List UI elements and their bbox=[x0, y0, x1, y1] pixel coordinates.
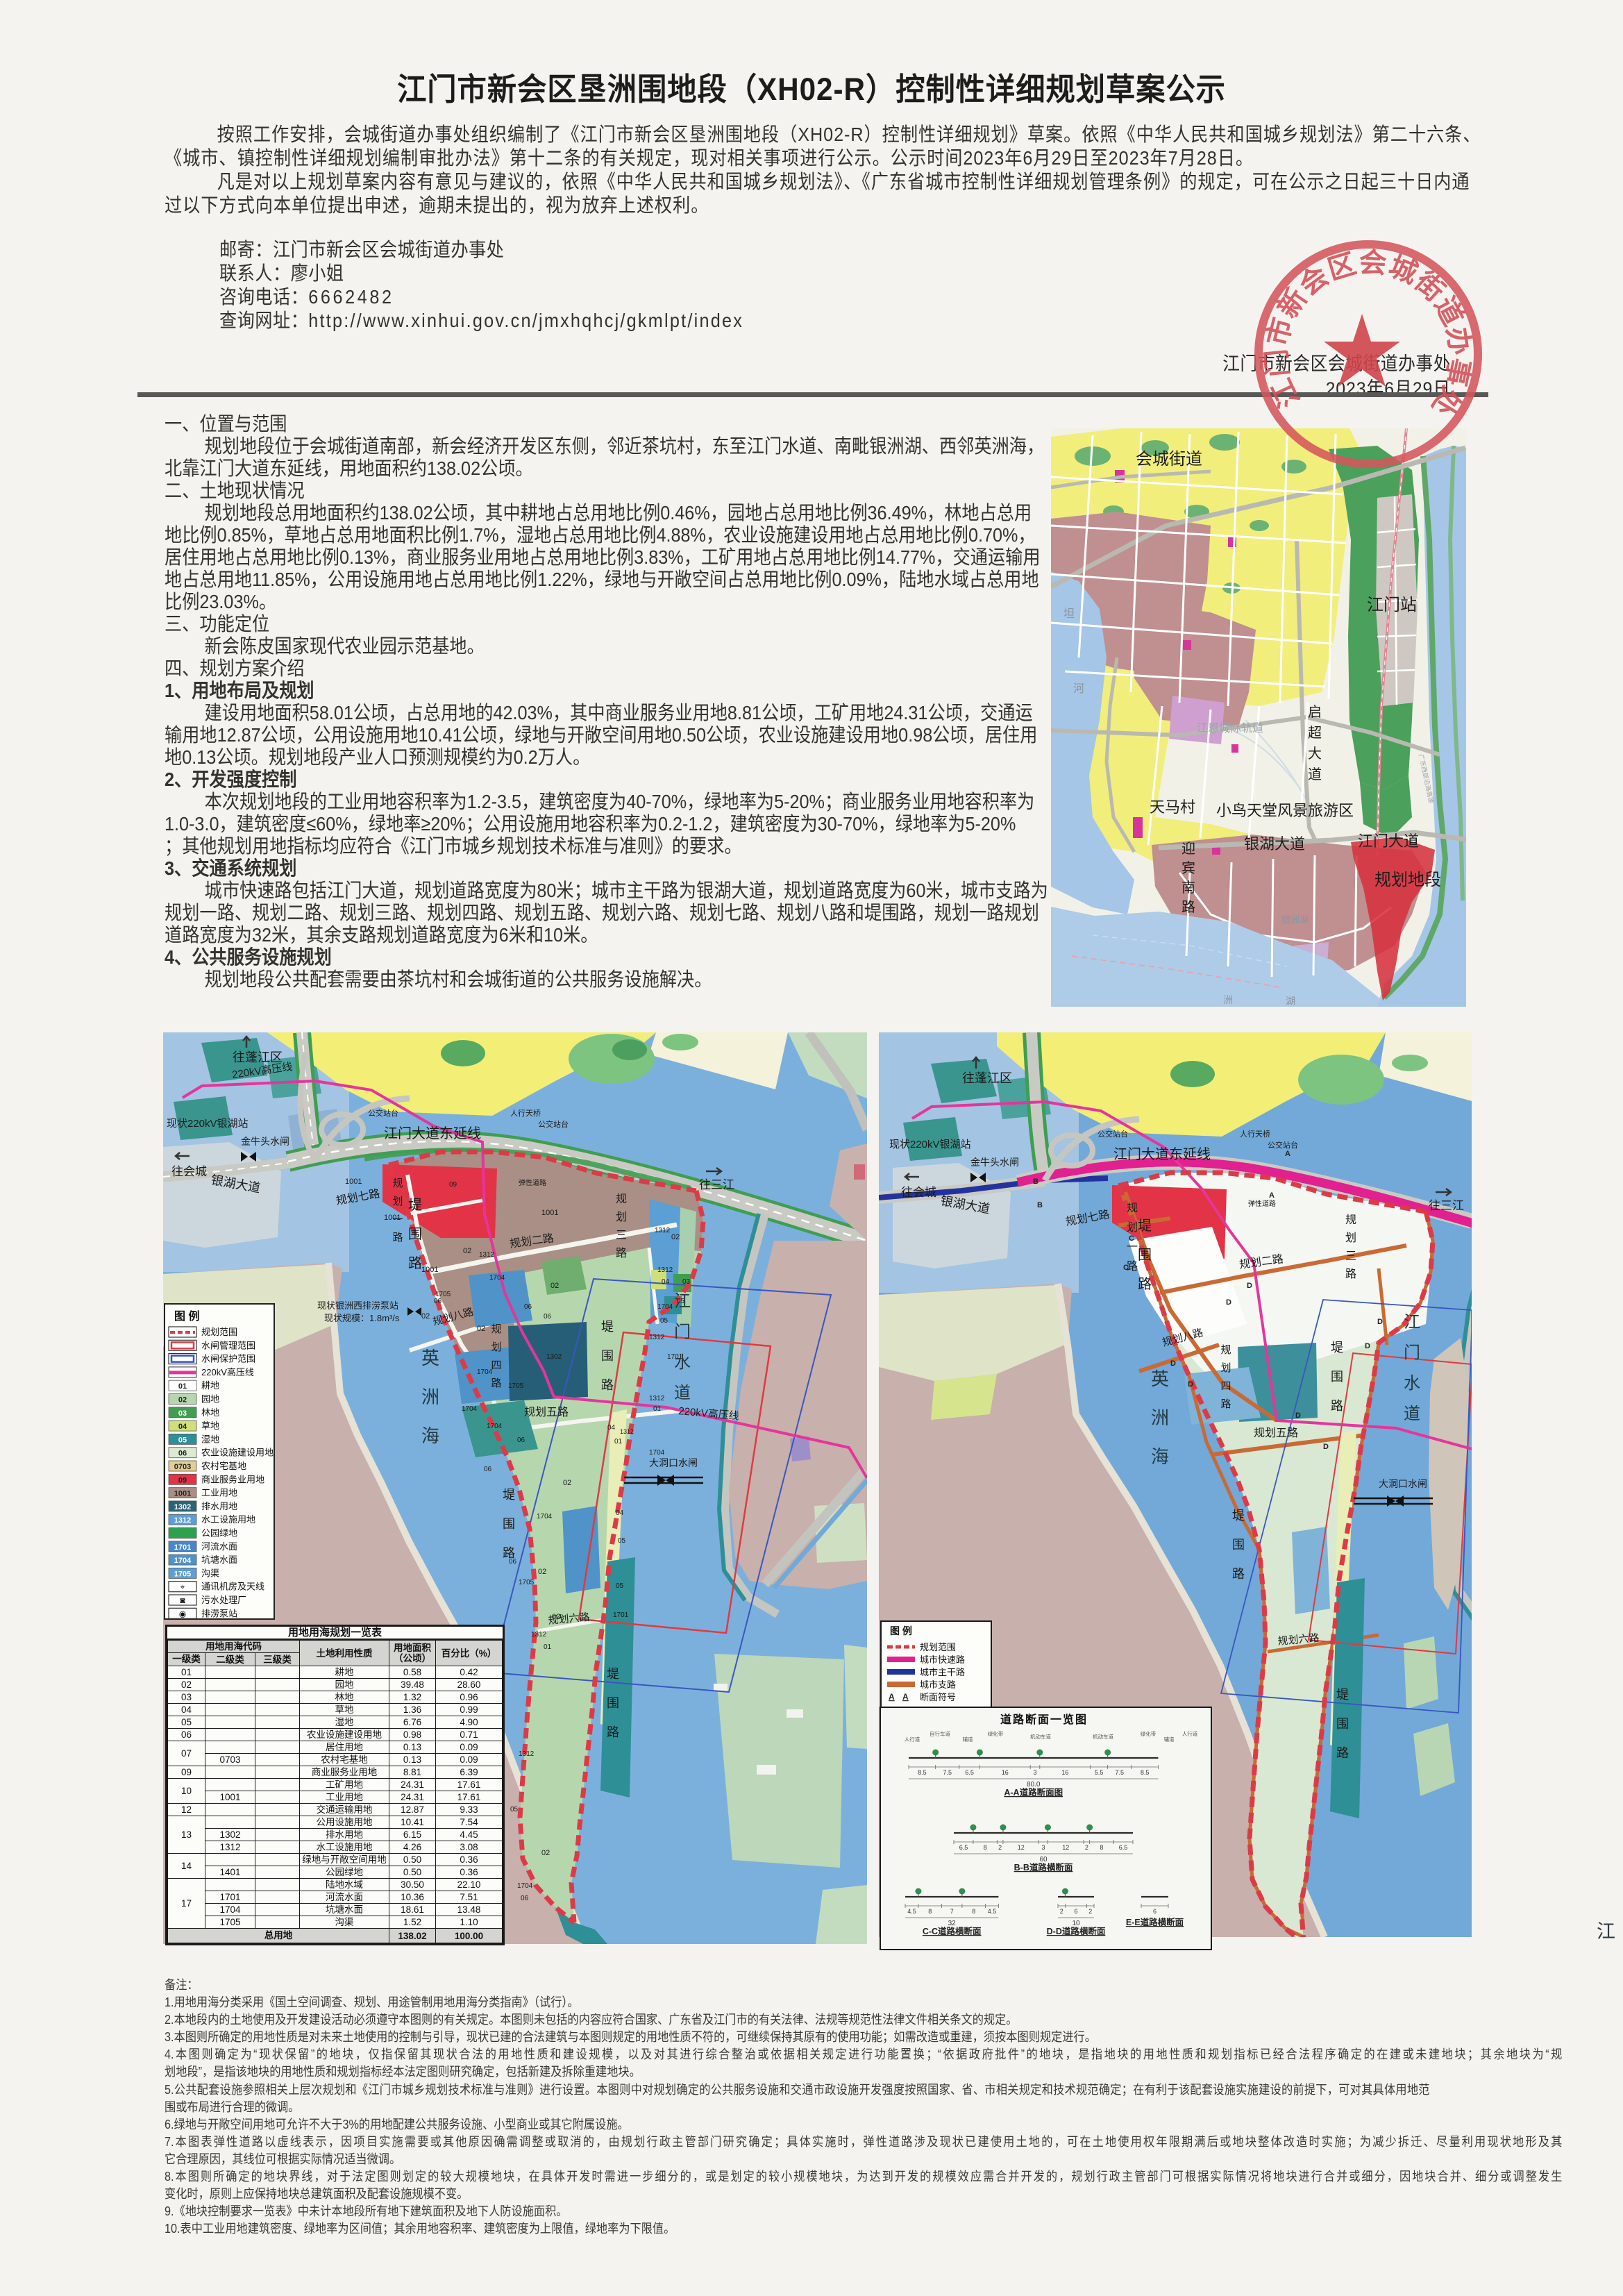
svg-text:围: 围 bbox=[1331, 1370, 1343, 1384]
svg-text:通讯机房及天线: 通讯机房及天线 bbox=[201, 1582, 264, 1592]
svg-text:现状220kV银湖站: 现状220kV银湖站 bbox=[167, 1118, 249, 1130]
svg-text:坦: 坦 bbox=[1063, 607, 1075, 620]
svg-text:天马村: 天马村 bbox=[1150, 798, 1195, 816]
svg-text:绿化带: 绿化带 bbox=[988, 1730, 1004, 1737]
svg-text:路: 路 bbox=[1181, 899, 1195, 915]
svg-text:1705: 1705 bbox=[508, 1382, 524, 1390]
svg-text:江恩城际轨道: 江恩城际轨道 bbox=[1197, 722, 1263, 735]
svg-text:规划地段: 规划地段 bbox=[1374, 871, 1441, 889]
svg-text:银洲湖: 银洲湖 bbox=[1281, 914, 1309, 925]
svg-text:自行车道: 自行车道 bbox=[930, 1730, 950, 1737]
svg-text:英: 英 bbox=[421, 1348, 439, 1368]
svg-text:06: 06 bbox=[544, 1313, 552, 1321]
svg-text:2: 2 bbox=[1060, 1908, 1063, 1915]
svg-text:河: 河 bbox=[1073, 682, 1084, 695]
svg-text:路: 路 bbox=[1232, 1567, 1245, 1581]
svg-text:02: 02 bbox=[463, 1247, 471, 1255]
svg-text:01: 01 bbox=[544, 1643, 552, 1651]
svg-text:03: 03 bbox=[178, 1409, 187, 1418]
svg-text:道路断面一览图: 道路断面一览图 bbox=[1000, 1713, 1088, 1726]
svg-text:划: 划 bbox=[1220, 1362, 1231, 1374]
svg-text:江门站: 江门站 bbox=[1367, 596, 1417, 614]
svg-text:1312: 1312 bbox=[649, 1334, 665, 1341]
svg-text:05: 05 bbox=[616, 1582, 624, 1590]
svg-text:排水用地: 排水用地 bbox=[201, 1501, 237, 1511]
svg-text:04: 04 bbox=[178, 1423, 187, 1431]
svg-text:机动车道: 机动车道 bbox=[1030, 1733, 1051, 1740]
svg-text:4.5: 4.5 bbox=[988, 1908, 997, 1915]
svg-text:道: 道 bbox=[674, 1384, 691, 1402]
svg-text:1001: 1001 bbox=[174, 1490, 191, 1498]
svg-text:图 例: 图 例 bbox=[890, 1625, 912, 1636]
svg-text:水工设施用地: 水工设施用地 bbox=[201, 1514, 255, 1525]
svg-text:规划五路: 规划五路 bbox=[524, 1406, 569, 1418]
svg-text:05: 05 bbox=[510, 1806, 519, 1813]
svg-text:三: 三 bbox=[616, 1230, 627, 1241]
svg-text:06: 06 bbox=[178, 1450, 187, 1458]
svg-text:1704: 1704 bbox=[174, 1557, 192, 1565]
svg-text:04: 04 bbox=[662, 1278, 670, 1286]
svg-text:1704: 1704 bbox=[489, 1274, 505, 1282]
svg-text:门: 门 bbox=[674, 1323, 691, 1341]
svg-text:7.5: 7.5 bbox=[943, 1769, 952, 1776]
svg-text:往三江: 往三江 bbox=[1429, 1199, 1464, 1212]
svg-text:8.5: 8.5 bbox=[1141, 1769, 1150, 1776]
svg-text:1302: 1302 bbox=[174, 1503, 191, 1511]
svg-text:划: 划 bbox=[491, 1341, 501, 1353]
svg-text:划: 划 bbox=[392, 1196, 403, 1207]
svg-text:金牛头水闸: 金牛头水闸 bbox=[970, 1157, 1019, 1168]
svg-text:D: D bbox=[1188, 1380, 1193, 1389]
svg-text:02: 02 bbox=[541, 1849, 550, 1857]
svg-text:规划范围: 规划范围 bbox=[201, 1327, 237, 1337]
svg-text:1312: 1312 bbox=[620, 1428, 634, 1435]
svg-text:⌖: ⌖ bbox=[180, 1582, 185, 1592]
svg-text:1701: 1701 bbox=[613, 1611, 629, 1619]
svg-text:江门大道东延线: 江门大道东延线 bbox=[1113, 1146, 1211, 1162]
svg-text:往三江: 往三江 bbox=[699, 1178, 734, 1191]
svg-text:06: 06 bbox=[484, 1466, 492, 1473]
svg-text:D: D bbox=[1295, 1411, 1301, 1420]
svg-text:堤: 堤 bbox=[503, 1488, 515, 1502]
svg-text:公交站台: 公交站台 bbox=[538, 1119, 569, 1129]
svg-text:01: 01 bbox=[178, 1382, 187, 1391]
svg-text:1704: 1704 bbox=[649, 1449, 665, 1457]
svg-text:道: 道 bbox=[1308, 766, 1322, 782]
svg-text:路: 路 bbox=[1138, 1276, 1152, 1292]
svg-text:图 例: 图 例 bbox=[174, 1309, 199, 1323]
svg-text:现状220kV银湖站: 现状220kV银湖站 bbox=[889, 1139, 971, 1150]
svg-text:断面符号: 断面符号 bbox=[920, 1692, 956, 1702]
svg-text:02: 02 bbox=[421, 1312, 430, 1321]
svg-text:道: 道 bbox=[1404, 1405, 1420, 1423]
svg-text:D: D bbox=[1247, 1282, 1252, 1290]
svg-text:02: 02 bbox=[477, 1325, 485, 1333]
svg-text:规: 规 bbox=[1345, 1214, 1356, 1226]
svg-text:路: 路 bbox=[601, 1378, 614, 1392]
svg-text:大洞口水闸: 大洞口水闸 bbox=[649, 1457, 698, 1468]
svg-text:路: 路 bbox=[491, 1377, 501, 1389]
svg-text:往会城: 往会城 bbox=[901, 1186, 936, 1199]
svg-text:围: 围 bbox=[1232, 1538, 1245, 1552]
svg-text:洲: 洲 bbox=[1151, 1407, 1169, 1428]
svg-text:06: 06 bbox=[517, 1436, 525, 1444]
svg-text:沟渠: 沟渠 bbox=[201, 1568, 219, 1578]
svg-text:1704: 1704 bbox=[487, 1423, 503, 1430]
svg-text:1312: 1312 bbox=[479, 1251, 495, 1259]
svg-text:1312: 1312 bbox=[531, 1631, 547, 1639]
svg-text:四: 四 bbox=[491, 1359, 501, 1371]
svg-text:1705: 1705 bbox=[519, 1579, 535, 1586]
svg-text:金牛头水闸: 金牛头水闸 bbox=[241, 1136, 289, 1147]
svg-text:8: 8 bbox=[928, 1908, 932, 1915]
svg-text:2: 2 bbox=[1085, 1844, 1088, 1851]
svg-text:1302: 1302 bbox=[546, 1353, 562, 1361]
svg-text:06: 06 bbox=[521, 1895, 529, 1902]
svg-text:湖: 湖 bbox=[1286, 996, 1295, 1007]
svg-text:堤: 堤 bbox=[607, 1667, 619, 1681]
svg-text:规划五路: 规划五路 bbox=[1254, 1427, 1298, 1439]
svg-text:8: 8 bbox=[972, 1908, 975, 1915]
svg-text:路: 路 bbox=[1331, 1399, 1343, 1413]
svg-text:7.5: 7.5 bbox=[1115, 1769, 1124, 1776]
svg-text:大: 大 bbox=[1308, 746, 1322, 762]
svg-text:B-B道路横断面: B-B道路横断面 bbox=[1014, 1862, 1073, 1872]
svg-text:围: 围 bbox=[1336, 1717, 1349, 1731]
svg-text:1001: 1001 bbox=[541, 1209, 558, 1217]
svg-text:水闸管理范围: 水闸管理范围 bbox=[201, 1340, 255, 1350]
svg-text:堤: 堤 bbox=[601, 1320, 614, 1334]
svg-text:公园绿地: 公园绿地 bbox=[201, 1528, 237, 1539]
svg-text:围: 围 bbox=[503, 1517, 515, 1531]
svg-text:园地: 园地 bbox=[201, 1394, 219, 1405]
svg-text:09: 09 bbox=[178, 1476, 187, 1484]
svg-text:湿地: 湿地 bbox=[201, 1434, 219, 1444]
svg-text:01: 01 bbox=[614, 1438, 623, 1446]
svg-text:1001: 1001 bbox=[345, 1178, 362, 1186]
svg-text:3: 3 bbox=[1033, 1769, 1036, 1776]
svg-text:堤: 堤 bbox=[1138, 1218, 1152, 1234]
svg-text:路: 路 bbox=[1345, 1268, 1356, 1280]
svg-text:辅道: 辅道 bbox=[963, 1736, 974, 1743]
svg-text:海: 海 bbox=[1151, 1446, 1169, 1467]
svg-text:0703: 0703 bbox=[174, 1463, 191, 1471]
svg-text:A-A道路断面图: A-A道路断面图 bbox=[1004, 1787, 1063, 1798]
svg-text:草地: 草地 bbox=[201, 1421, 219, 1431]
svg-text:耕地: 耕地 bbox=[201, 1380, 219, 1391]
svg-text:公交站台: 公交站台 bbox=[1268, 1140, 1298, 1150]
svg-text:城市支路: 城市支路 bbox=[920, 1679, 956, 1690]
svg-text:A: A bbox=[902, 1692, 909, 1702]
svg-text:一: 一 bbox=[1127, 1241, 1138, 1253]
svg-text:6: 6 bbox=[1074, 1908, 1077, 1915]
svg-text:规: 规 bbox=[1127, 1202, 1138, 1214]
svg-text:1704: 1704 bbox=[657, 1303, 673, 1311]
svg-text:D: D bbox=[1170, 1359, 1176, 1368]
svg-text:农村宅基地: 农村宅基地 bbox=[201, 1461, 246, 1471]
svg-text:A: A bbox=[1269, 1191, 1275, 1200]
svg-text:排涝泵站: 排涝泵站 bbox=[201, 1608, 237, 1618]
svg-text:规: 规 bbox=[1220, 1344, 1231, 1356]
svg-text:堤: 堤 bbox=[1331, 1341, 1343, 1355]
svg-text:路: 路 bbox=[408, 1255, 422, 1271]
svg-text:12: 12 bbox=[1018, 1844, 1025, 1851]
svg-text:三: 三 bbox=[1345, 1250, 1356, 1262]
svg-text:超: 超 bbox=[1308, 725, 1322, 741]
svg-text:1001: 1001 bbox=[421, 1266, 438, 1274]
svg-text:公交站台: 公交站台 bbox=[368, 1108, 398, 1118]
svg-text:1704: 1704 bbox=[537, 1513, 553, 1520]
svg-text:水: 水 bbox=[674, 1353, 691, 1372]
svg-text:03: 03 bbox=[682, 1278, 691, 1286]
svg-text:会城街道: 会城街道 bbox=[1136, 450, 1202, 469]
svg-text:工业用地: 工业用地 bbox=[201, 1488, 237, 1498]
svg-text:绿化带: 绿化带 bbox=[1141, 1730, 1157, 1737]
svg-text:启: 启 bbox=[1308, 704, 1322, 720]
svg-text:江门大道: 江门大道 bbox=[1358, 832, 1419, 850]
svg-text:6.5: 6.5 bbox=[1119, 1844, 1128, 1851]
svg-text:银湖大道: 银湖大道 bbox=[1244, 835, 1305, 853]
svg-text:江: 江 bbox=[674, 1292, 691, 1311]
svg-text:8.5: 8.5 bbox=[918, 1769, 927, 1776]
svg-text:污水处理厂: 污水处理厂 bbox=[201, 1595, 246, 1605]
svg-text:1312: 1312 bbox=[657, 1266, 673, 1274]
svg-text:城市快速路: 城市快速路 bbox=[920, 1654, 965, 1665]
svg-text:洲: 洲 bbox=[1223, 994, 1233, 1005]
svg-text:06: 06 bbox=[434, 1298, 442, 1305]
svg-text:◙: ◙ bbox=[180, 1595, 185, 1605]
svg-text:D: D bbox=[1377, 1318, 1383, 1326]
svg-text:弹性道路: 弹性道路 bbox=[519, 1178, 546, 1187]
svg-text:往蓬江区: 往蓬江区 bbox=[962, 1071, 1012, 1085]
svg-text:坑塘水面: 坑塘水面 bbox=[201, 1555, 237, 1565]
svg-text:02: 02 bbox=[178, 1396, 187, 1405]
svg-text:1312: 1312 bbox=[174, 1516, 191, 1525]
svg-text:02: 02 bbox=[671, 1233, 680, 1241]
svg-text:围: 围 bbox=[607, 1696, 619, 1710]
svg-text:◉: ◉ bbox=[179, 1609, 186, 1618]
svg-text:1704: 1704 bbox=[462, 1405, 478, 1413]
svg-text:6: 6 bbox=[1153, 1908, 1157, 1915]
svg-text:1312: 1312 bbox=[655, 1227, 671, 1234]
svg-text:围: 围 bbox=[1138, 1248, 1152, 1263]
svg-text:路: 路 bbox=[503, 1546, 515, 1560]
svg-text:宾: 宾 bbox=[1181, 860, 1195, 876]
svg-text:路: 路 bbox=[616, 1247, 627, 1259]
svg-text:围: 围 bbox=[408, 1227, 422, 1242]
svg-text:A: A bbox=[1285, 1150, 1290, 1158]
svg-text:6.5: 6.5 bbox=[965, 1769, 974, 1776]
svg-text:路: 路 bbox=[1220, 1398, 1231, 1410]
svg-text:C: C bbox=[1129, 1234, 1134, 1243]
svg-text:人行道: 人行道 bbox=[1182, 1730, 1198, 1737]
svg-text:弹性道路: 弹性道路 bbox=[1248, 1199, 1276, 1208]
svg-text:洲: 洲 bbox=[421, 1386, 439, 1407]
svg-text:堤: 堤 bbox=[1336, 1688, 1349, 1702]
svg-text:划: 划 bbox=[1127, 1221, 1138, 1234]
svg-text:堤: 堤 bbox=[1232, 1509, 1245, 1523]
svg-text:8: 8 bbox=[984, 1844, 987, 1851]
svg-text:02: 02 bbox=[563, 1479, 571, 1487]
svg-text:1705: 1705 bbox=[174, 1570, 191, 1578]
svg-text:门: 门 bbox=[1404, 1343, 1420, 1362]
svg-text:现状规模：1.8m³/s: 现状规模：1.8m³/s bbox=[324, 1313, 400, 1323]
svg-text:1701: 1701 bbox=[174, 1543, 191, 1552]
svg-text:1312: 1312 bbox=[649, 1395, 665, 1402]
svg-text:02: 02 bbox=[552, 1613, 560, 1621]
svg-text:海: 海 bbox=[421, 1425, 439, 1446]
svg-text:往会城: 往会城 bbox=[171, 1165, 207, 1178]
svg-text:辅道: 辅道 bbox=[1164, 1736, 1175, 1743]
svg-text:C: C bbox=[1123, 1264, 1129, 1272]
svg-text:1704: 1704 bbox=[477, 1368, 493, 1376]
svg-text:南: 南 bbox=[1181, 880, 1195, 896]
svg-text:4.5: 4.5 bbox=[907, 1908, 916, 1915]
svg-text:3: 3 bbox=[1041, 1844, 1045, 1851]
svg-text:江门大道东延线: 江门大道东延线 bbox=[384, 1125, 481, 1141]
svg-text:小鸟天堂风景旅游区: 小鸟天堂风景旅游区 bbox=[1216, 802, 1354, 819]
svg-text:路: 路 bbox=[392, 1232, 403, 1243]
svg-text:2: 2 bbox=[998, 1844, 1002, 1851]
svg-text:路: 路 bbox=[1336, 1746, 1349, 1760]
svg-text:商业服务业用地: 商业服务业用地 bbox=[201, 1474, 264, 1484]
svg-text:路: 路 bbox=[607, 1725, 619, 1739]
svg-text:划: 划 bbox=[616, 1211, 627, 1223]
svg-text:往蓬江区: 往蓬江区 bbox=[233, 1050, 283, 1064]
svg-text:220kV高压线: 220kV高压线 bbox=[201, 1367, 254, 1377]
svg-text:机动车道: 机动车道 bbox=[1093, 1733, 1113, 1740]
svg-text:05: 05 bbox=[178, 1436, 187, 1444]
svg-text:河流水面: 河流水面 bbox=[201, 1541, 237, 1552]
svg-text:B: B bbox=[1033, 1178, 1038, 1186]
svg-text:7: 7 bbox=[950, 1908, 954, 1915]
svg-text:D: D bbox=[1323, 1443, 1329, 1451]
svg-text:规划范围: 规划范围 bbox=[920, 1642, 956, 1652]
svg-text:1704: 1704 bbox=[517, 1882, 533, 1890]
svg-text:05: 05 bbox=[660, 1317, 668, 1325]
svg-text:迎: 迎 bbox=[1181, 841, 1195, 857]
svg-text:12: 12 bbox=[1062, 1844, 1069, 1851]
svg-text:2: 2 bbox=[1088, 1908, 1092, 1915]
svg-text:5.5: 5.5 bbox=[1095, 1769, 1104, 1776]
svg-text:水闸保护范围: 水闸保护范围 bbox=[201, 1354, 255, 1364]
svg-text:城市主干路: 城市主干路 bbox=[920, 1667, 965, 1677]
svg-text:04: 04 bbox=[607, 1424, 616, 1432]
svg-text:A: A bbox=[889, 1692, 895, 1702]
svg-text:05: 05 bbox=[618, 1537, 626, 1545]
svg-text:02: 02 bbox=[538, 1568, 546, 1576]
svg-text:农业设施建设用地: 农业设施建设用地 bbox=[201, 1448, 274, 1458]
svg-text:围: 围 bbox=[601, 1349, 614, 1363]
svg-text:02: 02 bbox=[550, 1282, 559, 1290]
svg-text:人行天桥: 人行天桥 bbox=[510, 1109, 541, 1118]
svg-text:堤: 堤 bbox=[408, 1197, 422, 1213]
svg-text:公交站台: 公交站台 bbox=[1098, 1129, 1128, 1139]
svg-text:8: 8 bbox=[1100, 1844, 1103, 1851]
svg-text:16: 16 bbox=[1002, 1769, 1009, 1776]
svg-text:水: 水 bbox=[1404, 1374, 1420, 1393]
svg-text:1312: 1312 bbox=[519, 1750, 535, 1758]
svg-text:01: 01 bbox=[653, 1405, 662, 1413]
svg-text:林地: 林地 bbox=[201, 1407, 219, 1418]
svg-text:C-C道路横断面: C-C道路横断面 bbox=[923, 1926, 982, 1936]
svg-text:6.5: 6.5 bbox=[959, 1844, 968, 1851]
svg-text:D-D道路横断面: D-D道路横断面 bbox=[1047, 1926, 1106, 1936]
svg-text:英: 英 bbox=[1151, 1368, 1169, 1389]
svg-text:四: 四 bbox=[1220, 1380, 1231, 1392]
svg-text:人行道: 人行道 bbox=[905, 1736, 920, 1743]
svg-text:规: 规 bbox=[616, 1193, 627, 1205]
svg-text:规: 规 bbox=[491, 1323, 501, 1335]
svg-text:江: 江 bbox=[1404, 1313, 1420, 1332]
svg-text:E-E道路横断面: E-E道路横断面 bbox=[1126, 1917, 1184, 1927]
svg-text:06: 06 bbox=[524, 1303, 532, 1311]
svg-text:D: D bbox=[1365, 1342, 1370, 1350]
svg-text:规: 规 bbox=[392, 1178, 403, 1189]
svg-text:16: 16 bbox=[1061, 1769, 1068, 1776]
svg-text:一: 一 bbox=[392, 1214, 403, 1225]
svg-text:人行天桥: 人行天桥 bbox=[1240, 1130, 1270, 1139]
svg-text:大洞口水闸: 大洞口水闸 bbox=[1379, 1478, 1427, 1489]
svg-text:09: 09 bbox=[449, 1181, 457, 1189]
svg-text:04: 04 bbox=[616, 1509, 624, 1517]
svg-text:B: B bbox=[1037, 1201, 1043, 1209]
svg-text:现状银洲西排涝泵站: 现状银洲西排涝泵站 bbox=[317, 1300, 398, 1311]
svg-text:D: D bbox=[1226, 1298, 1231, 1307]
svg-text:划: 划 bbox=[1345, 1232, 1356, 1244]
